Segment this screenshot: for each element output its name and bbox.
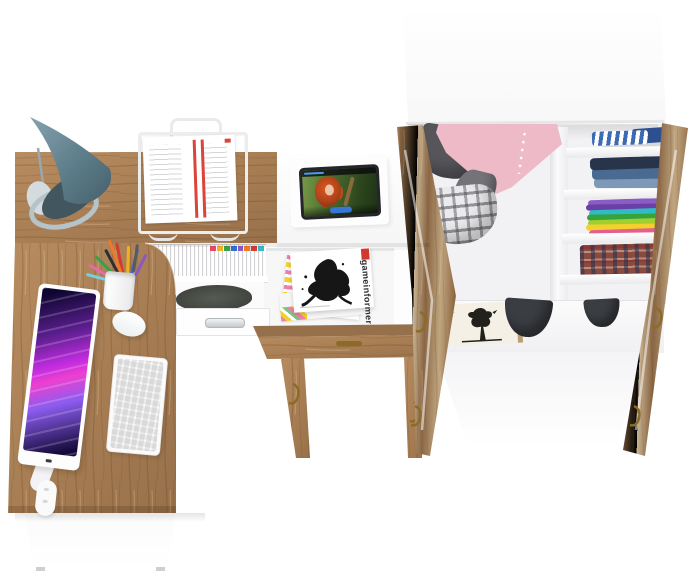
paper-red-mark — [225, 139, 231, 143]
paper-red-stripe — [193, 140, 199, 218]
tray-foot — [210, 226, 240, 241]
wardrobe-door-right — [623, 123, 688, 456]
stand-foot-dot — [44, 488, 49, 492]
tablet — [299, 164, 382, 220]
furniture-render-scene: gameinformer — [0, 0, 700, 581]
paper-text-column — [149, 144, 183, 215]
monitor-chin-port — [46, 459, 52, 463]
video-play-button — [330, 206, 352, 213]
keyboard-keys — [110, 358, 164, 452]
keyboard — [106, 354, 168, 456]
pencil-cup — [102, 271, 135, 311]
wooden-staff — [343, 177, 355, 207]
table-drawer-handle — [336, 341, 362, 346]
stand-foot-dot — [42, 500, 47, 504]
paper-tray — [138, 118, 248, 246]
tablet-screen — [302, 167, 378, 217]
wardrobe-door-left — [397, 125, 456, 456]
tray-papers — [143, 134, 238, 223]
desk-lamp — [0, 96, 150, 246]
